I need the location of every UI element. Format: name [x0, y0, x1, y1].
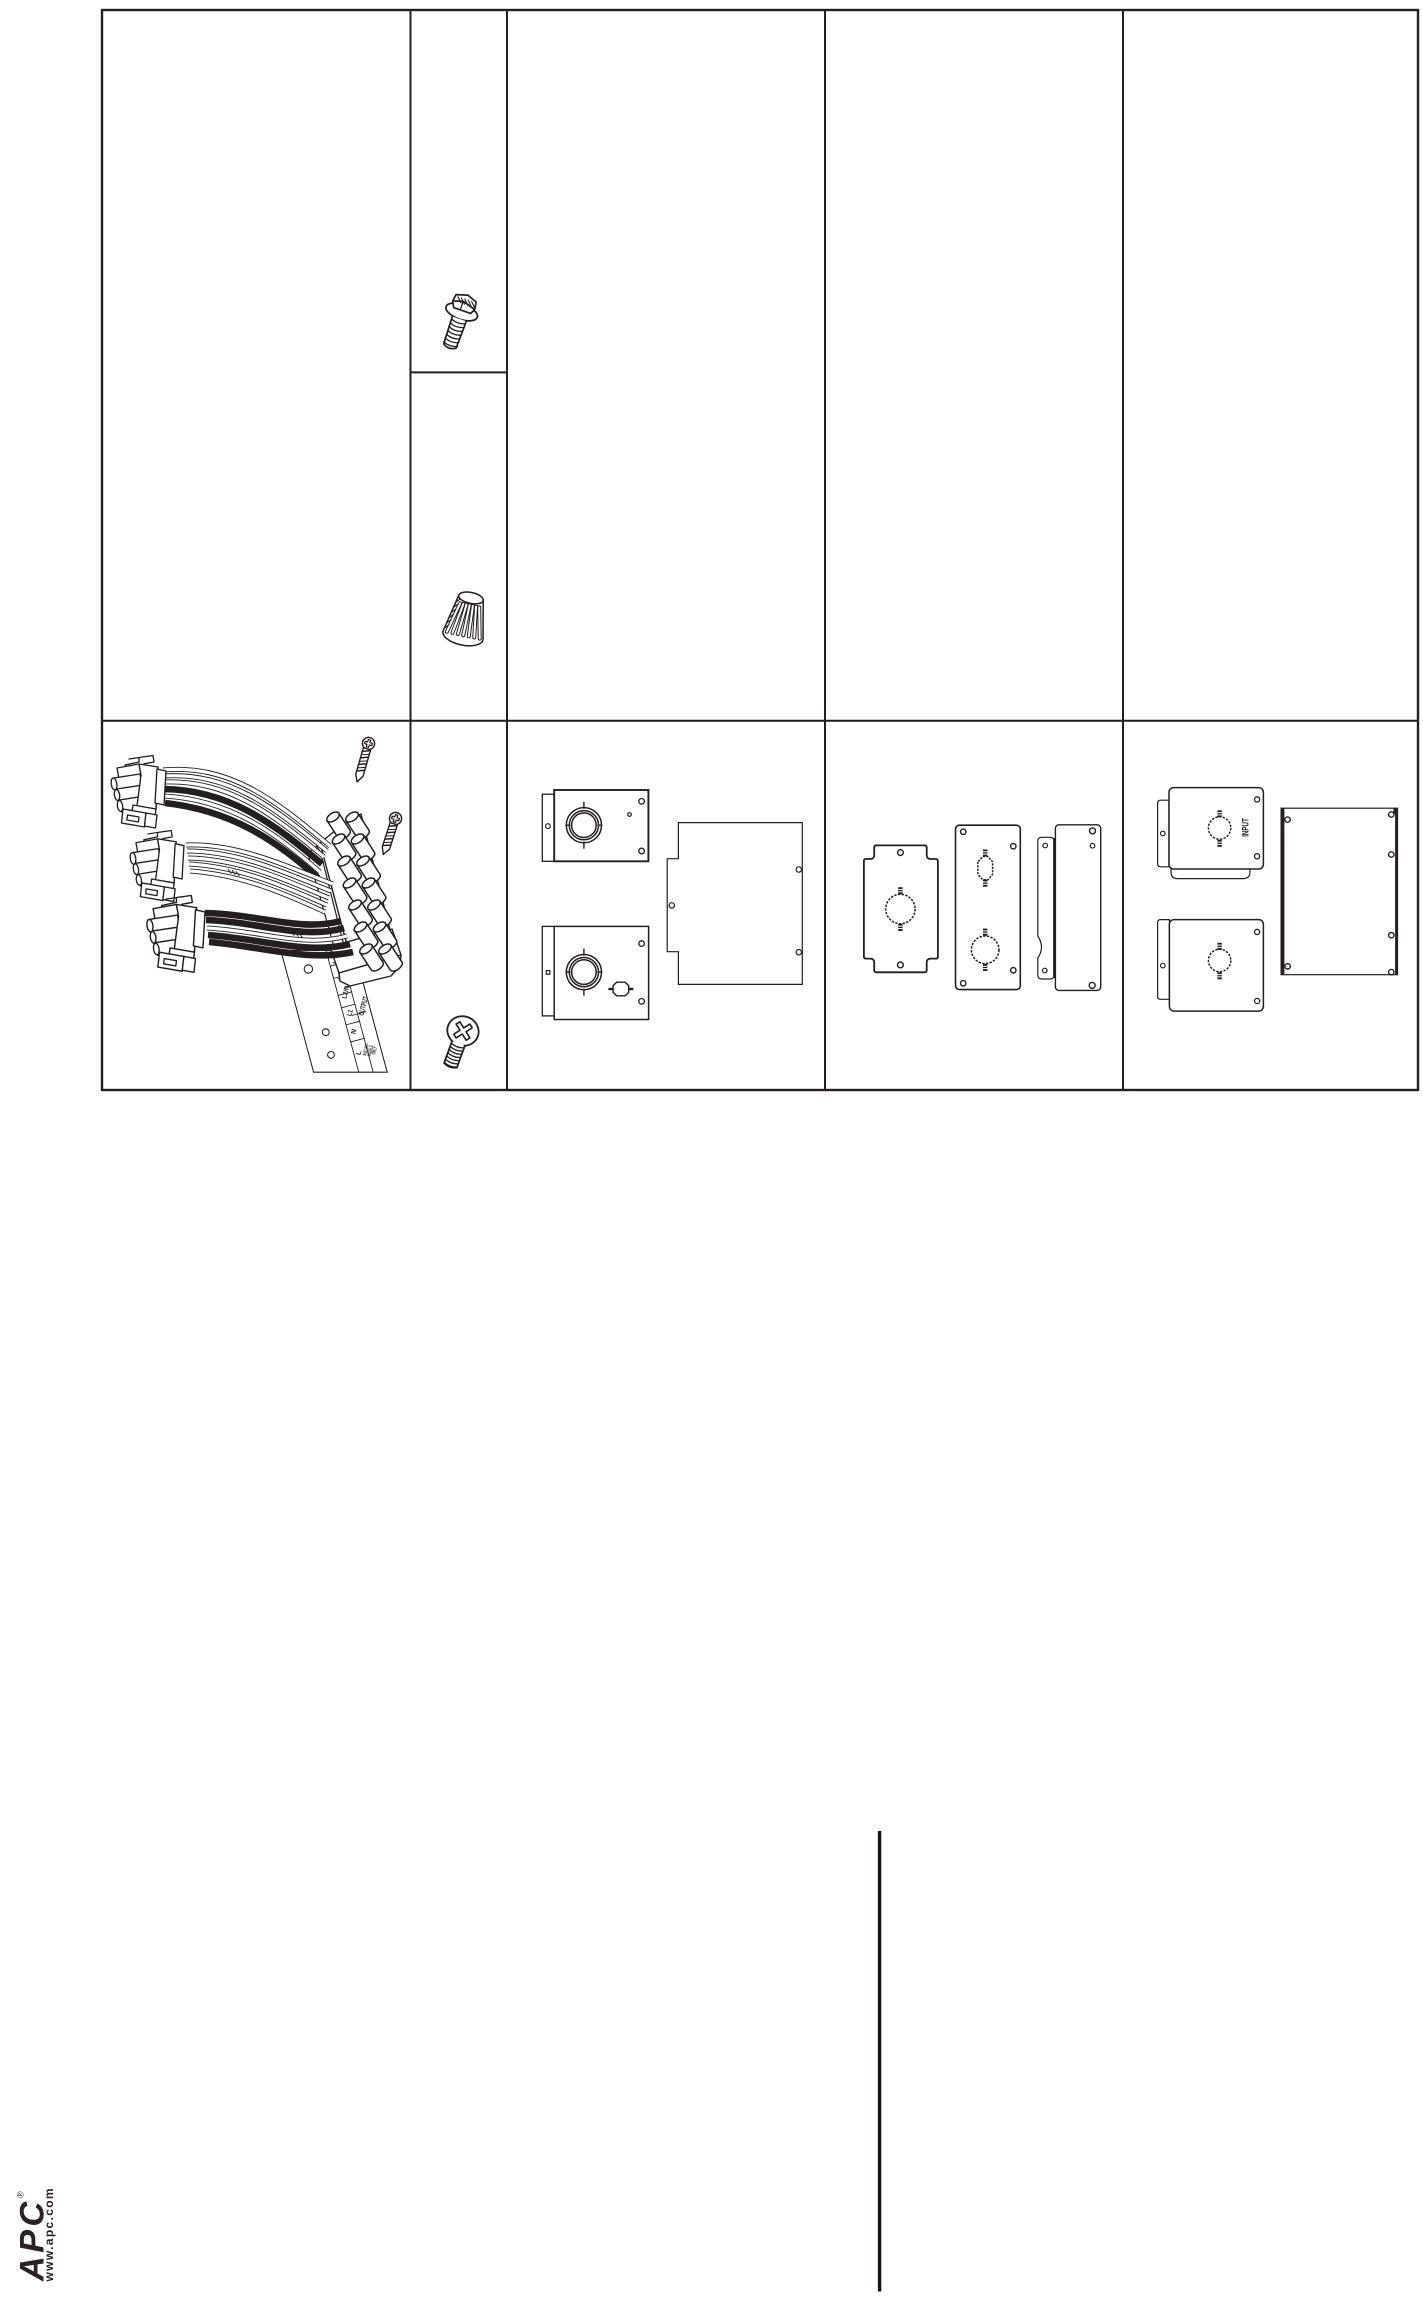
svg-text:INPUT: INPUT [1241, 818, 1252, 837]
svg-text:®: ® [16, 2191, 26, 2198]
svg-text:www.apc.com: www.apc.com [42, 2187, 56, 2282]
